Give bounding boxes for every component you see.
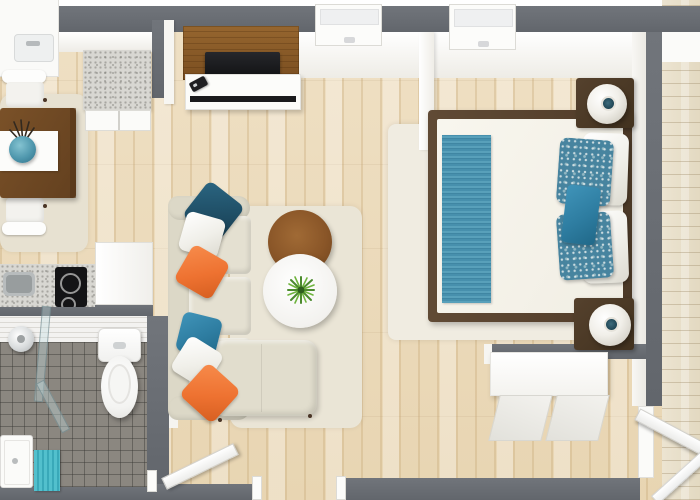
burner-icon	[61, 297, 76, 307]
lamp-top	[587, 84, 627, 124]
window-living	[315, 4, 382, 46]
kitchen-corner-counter	[0, 0, 59, 77]
bed-runner	[442, 135, 491, 303]
chair-leg	[43, 98, 47, 102]
bed-pillow-accent	[561, 184, 602, 246]
kitchen-island	[83, 50, 151, 110]
floor-plan-canvas	[0, 0, 700, 500]
flush-button-icon	[113, 342, 126, 349]
lamp-core	[601, 96, 616, 111]
dresser-front	[494, 395, 606, 441]
chair-seat	[6, 82, 44, 107]
dining-chair-top	[2, 70, 48, 108]
kitchen-wall-face	[58, 32, 152, 52]
toilet-seat	[108, 364, 131, 404]
cabinet-seam	[118, 111, 120, 130]
burner-icon	[60, 273, 81, 294]
dresser-drawer	[545, 395, 609, 441]
shower-head-center	[17, 335, 25, 343]
toilet-bowl	[101, 356, 138, 418]
hallway-white-landing	[662, 32, 700, 62]
divider-wall-cap	[164, 20, 174, 104]
plant-icon	[283, 272, 319, 308]
cooktop	[55, 267, 87, 307]
door-frame-mid	[336, 476, 346, 500]
chaise-seam	[261, 344, 262, 412]
window-bedroom	[449, 4, 516, 50]
bathroom-door-frame	[147, 470, 157, 492]
vase	[9, 136, 36, 163]
shower-tray	[0, 435, 33, 488]
chair-back	[2, 222, 46, 235]
lamp-bottom	[589, 304, 631, 346]
prep-sink-basin	[6, 275, 32, 293]
bathroom-right-wall	[147, 316, 169, 486]
island-cabinet	[85, 110, 151, 131]
faucet-icon	[26, 41, 40, 46]
chair-seat	[6, 198, 44, 223]
dining-chair-bottom	[2, 198, 48, 236]
dresser-drawer	[488, 395, 552, 441]
prep-sink	[3, 272, 35, 296]
door-frame-left	[252, 476, 262, 500]
window-handle	[344, 37, 355, 43]
shower-head-icon	[8, 326, 34, 352]
lamp-core	[604, 317, 619, 332]
divider-wall	[152, 20, 164, 98]
dresser-top	[490, 352, 608, 396]
bath-mat	[34, 450, 60, 491]
right-wall	[646, 32, 662, 406]
window-glass	[320, 9, 379, 25]
kitchen-sink	[14, 34, 54, 62]
window-handle	[478, 41, 489, 47]
bottom-wall-right	[344, 478, 640, 500]
kitchen-counter-run	[0, 264, 95, 307]
window-glass	[454, 9, 513, 27]
console-stripe	[190, 96, 296, 102]
sofa-foot	[308, 414, 312, 418]
table-edge	[70, 108, 76, 198]
counter-end-panel	[95, 242, 153, 305]
chair-leg	[43, 204, 47, 208]
drain-icon	[12, 458, 18, 464]
sofa-foot	[218, 418, 222, 422]
remote-buttons	[193, 83, 198, 88]
